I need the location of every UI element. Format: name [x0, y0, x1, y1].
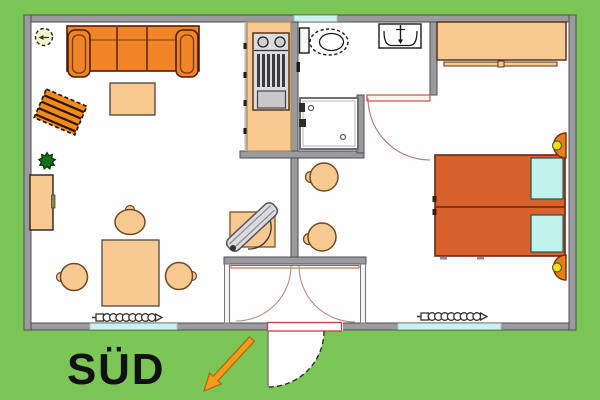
svg-text:SÜD: SÜD — [67, 345, 165, 394]
